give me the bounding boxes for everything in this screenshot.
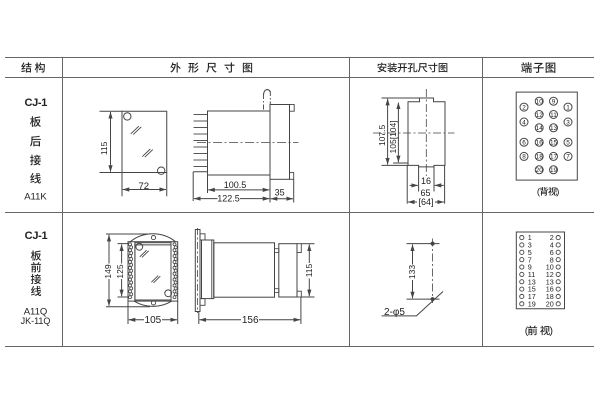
svg-text:CJ-1: CJ-1 — [25, 230, 48, 242]
svg-text:72: 72 — [139, 181, 150, 192]
svg-text:4: 4 — [522, 119, 526, 126]
svg-text:6: 6 — [522, 140, 526, 147]
svg-text:125: 125 — [115, 264, 125, 278]
svg-text:20: 20 — [546, 299, 554, 308]
svg-text:2: 2 — [522, 104, 526, 111]
svg-text:1: 1 — [566, 104, 570, 111]
svg-text:115: 115 — [304, 263, 314, 277]
svg-text:15: 15 — [550, 140, 558, 147]
svg-text:107.5: 107.5 — [377, 124, 387, 146]
svg-text:16: 16 — [421, 176, 431, 186]
svg-text:[64]: [64] — [418, 197, 433, 207]
svg-text:3: 3 — [566, 119, 570, 126]
svg-text:122.5: 122.5 — [217, 194, 240, 204]
svg-text:115: 115 — [99, 141, 109, 155]
svg-text:133: 133 — [407, 265, 417, 279]
svg-text:13: 13 — [550, 125, 558, 132]
svg-text:5: 5 — [566, 140, 570, 147]
svg-text:14: 14 — [536, 125, 544, 132]
svg-text:9: 9 — [552, 99, 556, 106]
svg-text:19: 19 — [528, 299, 536, 308]
svg-text:2-φ5: 2-φ5 — [384, 307, 405, 318]
svg-text:7: 7 — [566, 154, 570, 161]
svg-text:18: 18 — [536, 154, 544, 161]
svg-text:A11K: A11K — [24, 191, 47, 202]
svg-text:19: 19 — [550, 167, 558, 174]
svg-text:16: 16 — [536, 140, 544, 147]
svg-text:): ) — [549, 325, 553, 337]
svg-text:CJ-1: CJ-1 — [24, 97, 47, 109]
svg-text:12: 12 — [536, 112, 544, 119]
svg-text:105: 105 — [145, 315, 162, 326]
svg-text:JK-11Q: JK-11Q — [21, 316, 51, 326]
svg-text:(: ( — [525, 325, 529, 337]
svg-text:105[104]: 105[104] — [388, 120, 398, 153]
svg-text:100.5: 100.5 — [224, 180, 247, 190]
svg-text:156: 156 — [242, 315, 259, 326]
svg-text:8: 8 — [522, 154, 526, 161]
svg-text:149: 149 — [103, 264, 113, 278]
svg-text:17: 17 — [550, 154, 558, 161]
svg-text:): ) — [556, 186, 559, 197]
svg-text:35: 35 — [275, 187, 285, 197]
svg-text:20: 20 — [536, 167, 544, 174]
svg-text:11: 11 — [550, 112, 557, 119]
svg-text:10: 10 — [536, 99, 544, 106]
